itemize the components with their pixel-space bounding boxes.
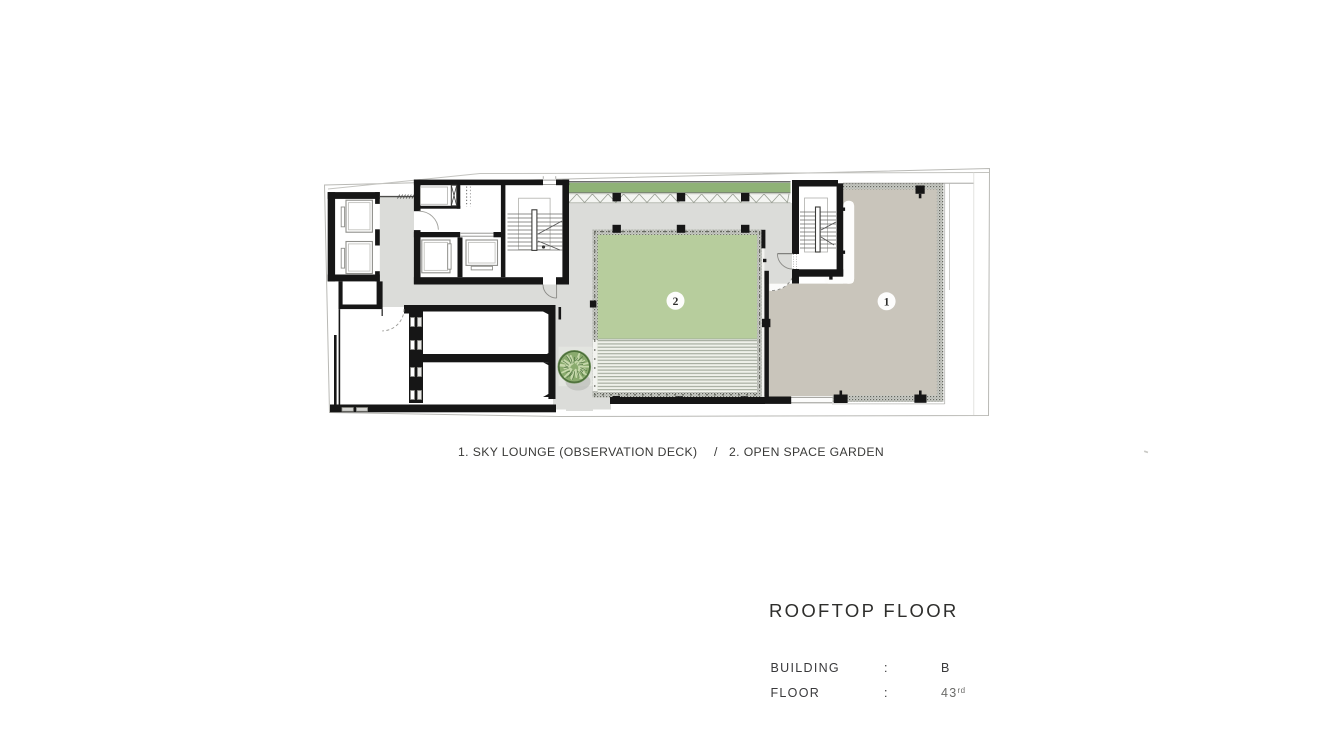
svg-text:2: 2 [673, 296, 679, 308]
svg-text:1: 1 [884, 297, 890, 309]
